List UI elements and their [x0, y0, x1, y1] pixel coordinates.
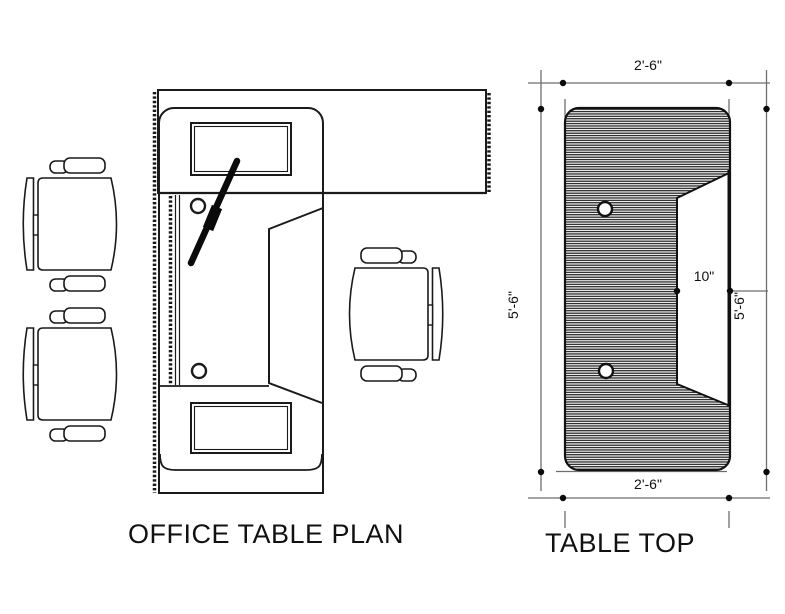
monitor-bottom-inner — [195, 407, 288, 450]
office-table-plan: OFFICE TABLE PLAN — [23, 90, 489, 549]
tabletop-grommet-top — [598, 202, 612, 216]
grommet-hole-top — [191, 199, 205, 213]
chair-top-left — [23, 158, 116, 291]
monitor-top-inner — [195, 127, 288, 172]
dim-height-right: 5'-6" — [731, 292, 747, 320]
drawing-sheet: OFFICE TABLE PLAN — [0, 0, 785, 614]
dim-height-left: 5'-6" — [505, 291, 521, 319]
plan-title: OFFICE TABLE PLAN — [128, 519, 404, 549]
keyboard-tray-cutout — [677, 173, 729, 406]
tabletop-title: TABLE TOP — [545, 528, 695, 558]
dim-width-top: 2'-6" — [634, 57, 662, 73]
grommet-hole-bottom — [192, 364, 206, 378]
cad-drawing: OFFICE TABLE PLAN — [0, 0, 785, 614]
chair-bottom-left — [23, 308, 116, 441]
table-top-drawing: 2'-6" 2'-6" 5'-6" 5'-6" 10" TABLE TOP — [505, 57, 770, 558]
chair-right — [350, 248, 443, 381]
dim-tray-depth: 10" — [694, 268, 715, 284]
tabletop-grommet-bottom — [599, 364, 613, 378]
dim-width-bottom: 2'-6" — [634, 476, 662, 492]
